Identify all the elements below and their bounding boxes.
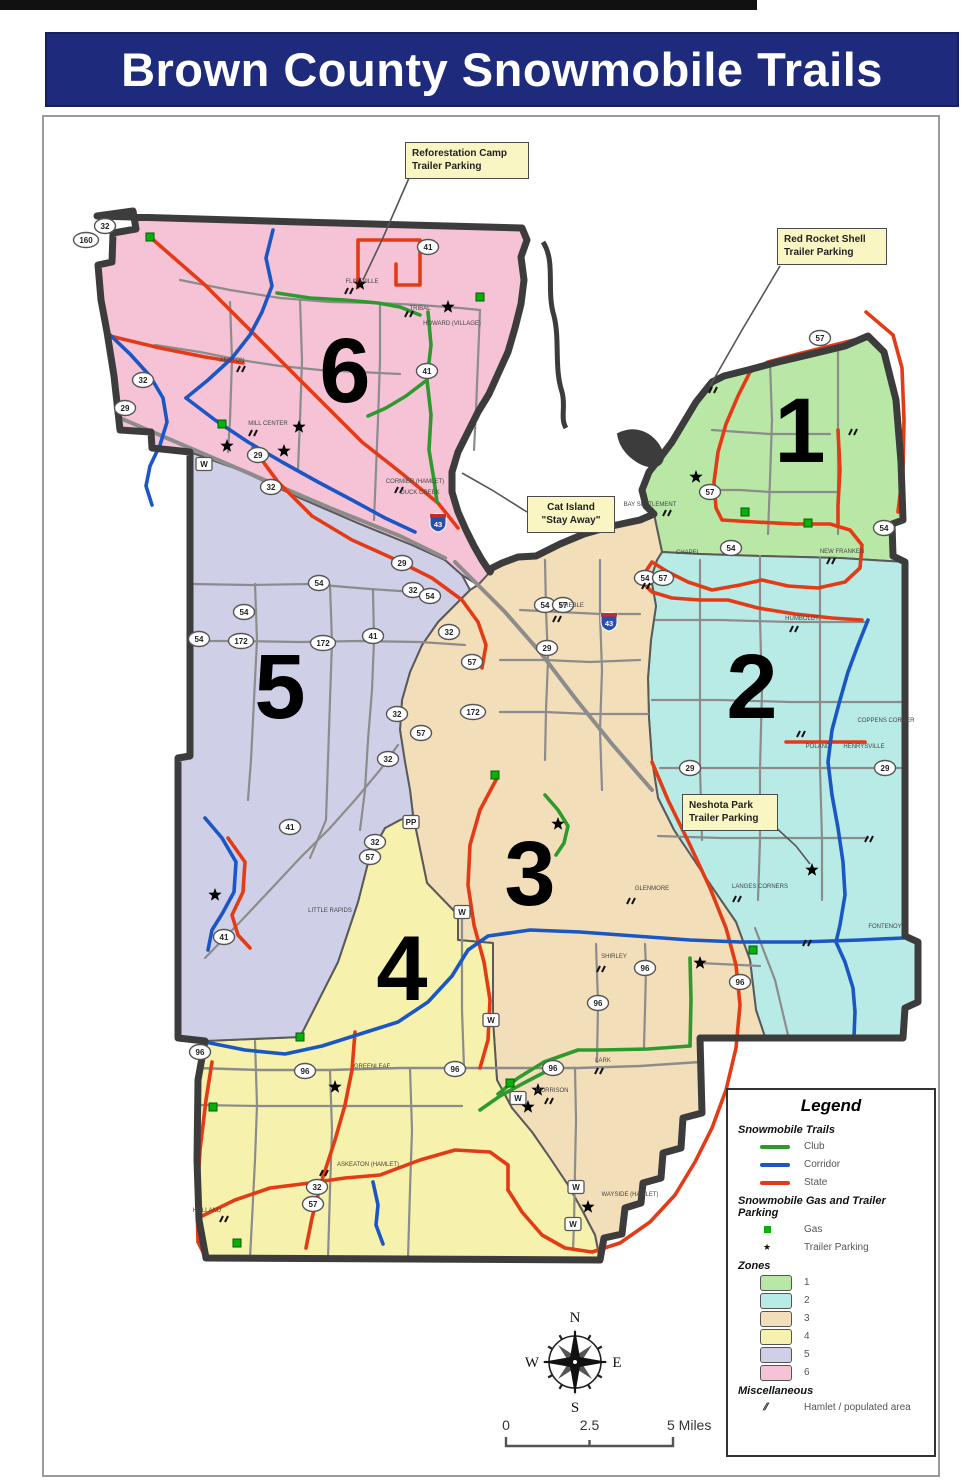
legend-section-heading: Snowmobile Gas and Trailer Parking (738, 1195, 924, 1219)
route-shield-number: 96 (196, 1048, 205, 1057)
county-road-letter: W (487, 1016, 495, 1025)
route-shield-number: 41 (424, 243, 433, 252)
legend-item-label: 2 (804, 1295, 810, 1306)
compass-letter: E (612, 1355, 621, 1371)
town-label: HOWARD (VILLAGE) (423, 321, 481, 327)
town-label: HUMBOLDT (785, 616, 819, 622)
cat-island-callout: Cat Island"Stay Away" (527, 496, 615, 533)
town-label: FLINTVILLE (345, 279, 378, 285)
page: Brown County Snowmobile Trails 123456321… (0, 0, 980, 1481)
scale-bar: 02.55 Miles (502, 1417, 711, 1446)
route-shield-number: 32 (101, 222, 110, 231)
route-shield-number: 54 (541, 601, 550, 610)
route-shield-number: 29 (881, 764, 890, 773)
route-shield-number: 32 (313, 1183, 322, 1192)
route-shield-number: 54 (426, 592, 435, 601)
reforestation-callout: Reforestation CampTrailer Parking (405, 142, 529, 179)
zone-3-number: 3 (504, 823, 555, 925)
cat-island-leader (462, 473, 527, 512)
red-rocket-callout-line: Trailer Parking (784, 247, 880, 260)
interstate-number: 43 (434, 520, 442, 529)
legend-item: 4 (760, 1329, 924, 1344)
legend-item-label: Hamlet / populated area (804, 1402, 911, 1413)
county-road-letter: W (514, 1094, 522, 1103)
route-shield-number: 96 (594, 999, 603, 1008)
town-label: DUCK CREEK (400, 490, 439, 496)
legend-item-label: 5 (804, 1349, 810, 1360)
legend-item-label: Corridor (804, 1159, 840, 1170)
compass-letter: W (525, 1355, 540, 1371)
town-label: CHAPEL (676, 550, 701, 556)
neshota-callout: Neshota ParkTrailer Parking (682, 794, 778, 831)
town-label: HENRYSVILLE (843, 744, 884, 750)
legend-item-label: 6 (804, 1367, 810, 1378)
route-shield-number: 32 (139, 376, 148, 385)
legend-item-label: 4 (804, 1331, 810, 1342)
gas-icon (764, 1226, 771, 1233)
gas-icon (296, 1033, 304, 1041)
route-shield-number: 41 (220, 933, 229, 942)
town-label: LARK (595, 1058, 611, 1064)
gas-icon (749, 946, 757, 954)
town-label: SHIRLEY (601, 954, 627, 960)
route-shield-number: 32 (445, 628, 454, 637)
route-shield-number: 29 (254, 451, 263, 460)
route-shield-number: 172 (234, 637, 248, 646)
gas-icon (476, 293, 484, 301)
trailer-parking-icon: ★ (763, 1242, 771, 1253)
zone-1-swatch (760, 1275, 792, 1291)
zone-5-number: 5 (254, 636, 305, 738)
zone-4-number: 4 (376, 918, 427, 1020)
cat-island-callout-line: Cat Island (534, 502, 608, 515)
legend-item: Club (760, 1139, 924, 1154)
red-rocket-callout: Red Rocket ShellTrailer Parking (777, 228, 887, 265)
legend-item-label: Club (804, 1141, 825, 1152)
state-trail (838, 430, 840, 524)
legend-title: Legend (738, 1096, 924, 1116)
zone-1-number: 1 (774, 380, 825, 482)
town-label: GREENLEAF (354, 1064, 391, 1070)
town-label: ASKEATON (HAMLET) (337, 1162, 399, 1168)
club-trail-swatch (760, 1145, 790, 1149)
route-shield-number: 29 (543, 644, 552, 653)
route-shield-number: 96 (301, 1067, 310, 1076)
red-rocket-callout-line: Red Rocket Shell (784, 234, 880, 247)
town-label: GLENMORE (635, 886, 669, 892)
legend-item: State (760, 1175, 924, 1190)
legend-item-label: State (804, 1177, 827, 1188)
hamlet-icon: ⫽ (763, 1402, 767, 1413)
interstate-shield-band (430, 514, 446, 518)
legend-item: 1 (760, 1275, 924, 1290)
gas-icon (209, 1103, 217, 1111)
road (198, 1105, 462, 1106)
route-shield-number: 32 (409, 586, 418, 595)
legend-item: 2 (760, 1293, 924, 1308)
town-label: MILL CENTER (248, 421, 288, 427)
gas-icon (741, 508, 749, 516)
county-road-letter: W (458, 908, 466, 917)
route-shield-number: 96 (736, 978, 745, 987)
route-shield-number: 54 (315, 579, 324, 588)
compass-letter: S (571, 1400, 579, 1416)
route-shield-number: 160 (79, 236, 93, 245)
route-shield-number: 172 (316, 639, 330, 648)
route-shield-number: 32 (393, 710, 402, 719)
legend-section-heading: Snowmobile Trails (738, 1124, 924, 1136)
scale-mid: 2.5 (580, 1417, 600, 1433)
route-shield-number: 57 (816, 334, 825, 343)
county-road-letter: W (569, 1220, 577, 1229)
legend-section-heading: Miscellaneous (738, 1385, 924, 1397)
state-trail-swatch (760, 1181, 790, 1185)
route-shield-number: 41 (423, 367, 432, 376)
zone-6-swatch (760, 1365, 792, 1381)
zone-4-swatch (760, 1329, 792, 1345)
legend-item-label: Gas (804, 1224, 822, 1235)
route-shield-number: 29 (686, 764, 695, 773)
zone-5-swatch (760, 1347, 792, 1363)
route-shield-number: 54 (195, 635, 204, 644)
town-label: CORMIER (HAMLET) (386, 479, 444, 485)
town-label: LITTLE RAPIDS (308, 908, 352, 914)
legend-item: Corridor (760, 1157, 924, 1172)
route-shield-number: 57 (417, 729, 426, 738)
corridor-trail-swatch (760, 1163, 790, 1167)
route-shield-number: 29 (121, 404, 130, 413)
route-shield-number: 57 (659, 574, 668, 583)
town-label: HOLLAND (193, 1208, 222, 1214)
legend-item: 5 (760, 1347, 924, 1362)
zone-3-swatch (760, 1311, 792, 1327)
cat-island-callout-line: "Stay Away" (534, 515, 608, 528)
town-label: PREBLE (560, 603, 584, 609)
route-shield-number: 32 (384, 755, 393, 764)
county-road-letter: PP (406, 818, 417, 827)
route-shield-number: 57 (706, 488, 715, 497)
legend-item: Gas (760, 1222, 924, 1237)
compass-rose: NSWE (525, 1310, 622, 1416)
route-shield-number: 54 (727, 544, 736, 553)
scale-start: 0 (502, 1417, 510, 1433)
legend-item: 3 (760, 1311, 924, 1326)
gas-icon (146, 233, 154, 241)
route-shield-number: 41 (369, 632, 378, 641)
gas-icon (491, 771, 499, 779)
town-label: LANGES CORNERS (732, 884, 788, 890)
legend-section-heading: Zones (738, 1260, 924, 1272)
gas-icon (506, 1079, 514, 1087)
interstate-number: 43 (605, 619, 613, 628)
legend-item: 6 (760, 1365, 924, 1380)
legend-item-label: 1 (804, 1277, 810, 1288)
route-shield-number: 57 (366, 853, 375, 862)
town-label: NEW FRANKEN (820, 549, 864, 555)
town-label: TRIBAL (409, 306, 431, 312)
route-shield-number: 32 (267, 483, 276, 492)
neshota-callout-line: Neshota Park (689, 800, 771, 813)
town-label: ANSTON (220, 358, 245, 364)
scale-end: 5 Miles (667, 1417, 711, 1433)
route-shield-number: 54 (641, 574, 650, 583)
route-shield-number: 57 (309, 1200, 318, 1209)
reforestation-callout-line: Reforestation Camp (412, 148, 522, 161)
legend-item-label: 3 (804, 1313, 810, 1324)
county-road-letter: W (200, 460, 208, 469)
town-label: FONTENOY (868, 924, 901, 930)
route-shield-number: 32 (371, 838, 380, 847)
interstate-shield-band (601, 613, 617, 617)
zone-2-number: 2 (726, 636, 777, 738)
zone-6-number: 6 (319, 320, 370, 422)
route-shield-number: 41 (286, 823, 295, 832)
town-label: BAY SETTLEMENT (624, 502, 677, 508)
reforestation-callout-line: Trailer Parking (412, 161, 522, 174)
route-shield-number: 172 (466, 708, 480, 717)
legend-item-label: Trailer Parking (804, 1242, 869, 1253)
town-label: MORRISON (536, 1088, 569, 1094)
route-shield-number: 54 (880, 524, 889, 533)
compass-letter: N (570, 1310, 581, 1326)
town-label: POLAND (806, 744, 831, 750)
gas-icon (218, 420, 226, 428)
town-label: COPPENS CORNER (857, 718, 915, 724)
route-shield-number: 96 (641, 964, 650, 973)
route-shield-number: 57 (468, 658, 477, 667)
legend-item: ⫽Hamlet / populated area (760, 1400, 924, 1415)
route-shield-number: 54 (240, 608, 249, 617)
gas-icon (804, 519, 812, 527)
town-label: WAYSIDE (HAMLET) (601, 1192, 658, 1198)
neshota-callout-line: Trailer Parking (689, 813, 771, 826)
gas-icon (233, 1239, 241, 1247)
zone-2-swatch (760, 1293, 792, 1309)
club-trail (690, 958, 691, 1046)
bay-island (543, 242, 566, 428)
legend: LegendSnowmobile TrailsClubCorridorState… (726, 1088, 936, 1457)
route-shield-number: 96 (451, 1065, 460, 1074)
county-road-letter: W (572, 1183, 580, 1192)
route-shield-number: 29 (398, 559, 407, 568)
route-shield-number: 96 (549, 1064, 558, 1073)
legend-item: ★Trailer Parking (760, 1240, 924, 1255)
